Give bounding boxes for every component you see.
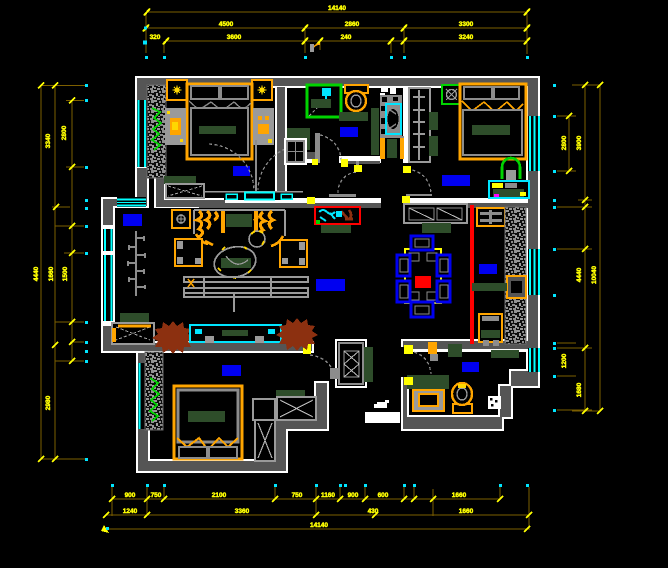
svg-text:2800: 2800 [561,135,568,150]
svg-text:1680: 1680 [576,382,583,397]
svg-text:4500: 4500 [219,21,234,28]
svg-text:1160: 1160 [321,492,335,499]
svg-text:1660: 1660 [452,492,467,499]
svg-text:3240: 3240 [459,34,474,41]
svg-text:3600: 3600 [227,34,242,41]
svg-text:1660: 1660 [48,266,55,281]
svg-text:2100: 2100 [212,492,227,499]
svg-text:240: 240 [341,34,352,41]
svg-text:900: 900 [348,492,359,499]
svg-text:2980: 2980 [45,395,52,410]
svg-text:750: 750 [151,492,162,499]
svg-text:14140: 14140 [328,5,346,12]
svg-text:2860: 2860 [345,21,360,28]
svg-text:3300: 3300 [459,21,474,28]
svg-text:1240: 1240 [123,508,138,515]
svg-text:1500: 1500 [62,266,69,281]
svg-text:750: 750 [292,492,303,499]
svg-text:1660: 1660 [459,508,474,515]
svg-text:4440: 4440 [33,266,40,281]
svg-text:2800: 2800 [61,125,68,140]
svg-text:900: 900 [125,492,136,499]
svg-text:3900: 3900 [576,135,583,150]
svg-text:1200: 1200 [561,353,568,368]
svg-text:3340: 3340 [45,133,52,148]
svg-text:10040: 10040 [591,266,598,284]
svg-text:3360: 3360 [235,508,250,515]
svg-text:14140: 14140 [310,522,328,529]
svg-text:4440: 4440 [576,267,583,282]
svg-text:430: 430 [368,508,379,515]
svg-text:600: 600 [378,492,389,499]
svg-text:320: 320 [150,34,161,41]
